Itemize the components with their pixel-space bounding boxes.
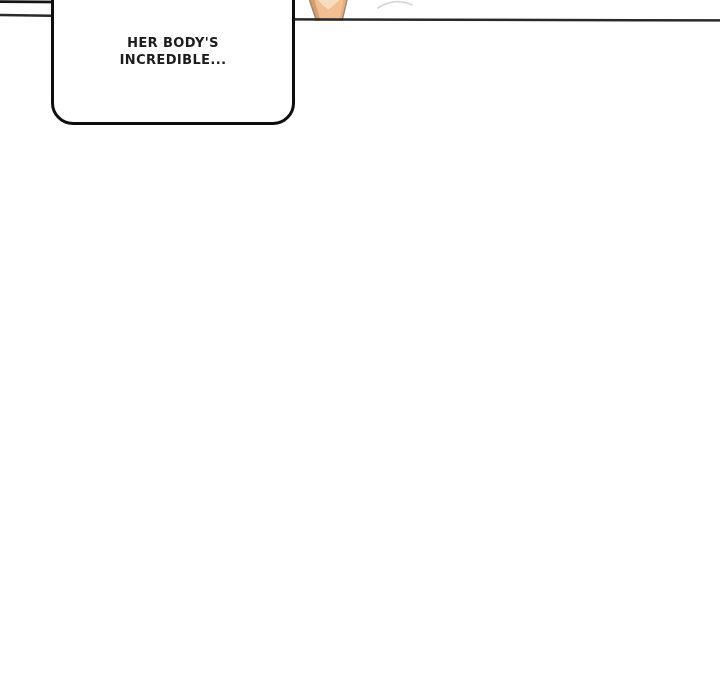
faint-sketch-curve	[378, 2, 412, 8]
comic-page: HER BODY'S INCREDIBLE...	[0, 0, 720, 700]
speech-bubble-text: HER BODY'S INCREDIBLE...	[54, 0, 292, 69]
speech-bubble-text-line1: HER BODY'S	[54, 35, 292, 52]
arm-artwork	[310, 0, 348, 21]
speech-bubble-text-line2: INCREDIBLE...	[54, 52, 292, 69]
speech-bubble: HER BODY'S INCREDIBLE...	[51, 0, 295, 125]
